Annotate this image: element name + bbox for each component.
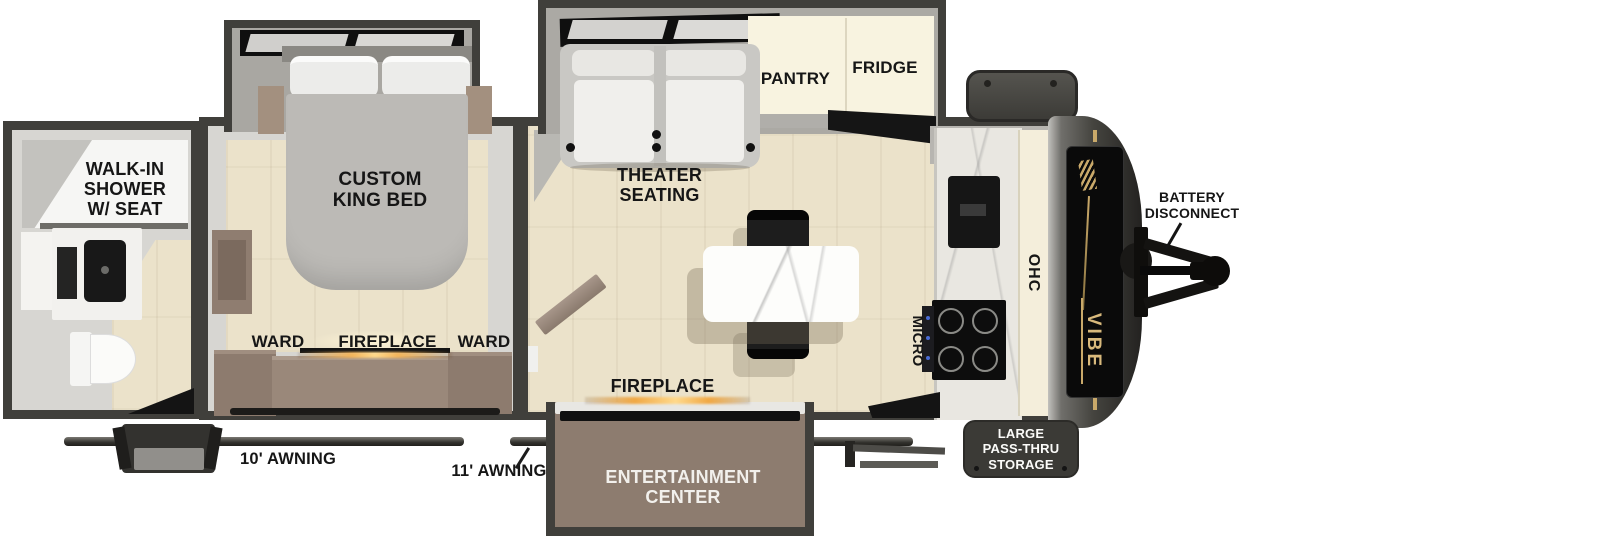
marker-light [1093,130,1097,142]
microwave-led [926,356,930,360]
microwave-label: MICRO [909,311,925,371]
screw-dot [1050,80,1057,87]
pass-thru-storage-label: LARGE PASS-THRU STORAGE [983,426,1060,473]
cupholder-dot [652,130,661,139]
cabinet-base [230,408,500,415]
burner [972,346,998,372]
entry-step-tread [134,448,204,470]
marker-light [1093,398,1097,410]
bedroom-fireplace-glow [298,352,452,358]
front-compartment [966,70,1078,122]
nightstand [466,86,492,134]
pantry-label: PANTRY [758,70,833,89]
wardrobe-left [214,350,276,416]
theater-headrest [572,50,656,76]
faucet [101,266,109,274]
vibe-logo: VIBE [1081,298,1103,384]
cupholder-dot [566,143,575,152]
king-bed-label: CUSTOM KING BED [300,170,460,212]
screw-dot [974,466,979,471]
walk-in-shower-label: WALK-IN SHOWER W/ SEAT [60,160,190,219]
entertainment-center-label: ENTERTAINMENT CENTER [598,468,768,508]
theater-cushion [664,80,744,162]
hitch-coupler [1200,256,1230,286]
microwave-led [926,316,930,320]
tv-strip [560,411,800,421]
living-fireplace-glow [585,397,750,404]
awning-11ft-label: 11' AWNING [444,462,554,480]
screw-dot [984,80,991,87]
battery-disconnect-label: BATTERY DISCONNECT [1142,189,1242,221]
screw-dot [1062,466,1067,471]
awning-arm [860,461,938,468]
fridge-label: FRIDGE [846,59,924,78]
awning-10ft-label: 10' AWNING [233,450,343,468]
fireplace-cabinet [272,356,452,414]
wardrobe-left-label: WARD [247,333,309,352]
pillow [290,56,378,98]
microwave-led [926,336,930,340]
awning-arm [853,444,945,454]
cupholder-dot [746,143,755,152]
toilet-tank [70,332,92,386]
linen-cabinet [21,232,54,310]
theater-seating-label: THEATER SEATING [592,166,727,206]
theater-cushion [574,80,654,162]
pillow [382,56,470,98]
overhead-cabinet-label: OHC [1026,243,1042,303]
burner [938,346,964,372]
wardrobe-right [448,352,512,414]
dining-table [703,246,859,322]
floorplan-canvas: 10' AWNING 11' AWNING WALK-IN SHOWER W/ … [0,0,1600,536]
entry-door-frame [528,346,538,372]
living-fireplace-label: FIREPLACE [605,377,720,397]
theater-headrest [662,50,746,76]
cupholder-dot [652,143,661,152]
cabinet-base [748,114,833,128]
burner [972,308,998,334]
nightstand [258,86,284,134]
bedroom-fireplace-label: FIREPLACE [330,333,445,352]
burner [938,308,964,334]
wardrobe-right-label: WARD [453,333,515,352]
medicine-cabinet [57,247,77,299]
window-pane [567,20,667,39]
bedroom-shelf-inset [218,240,246,300]
kitchen-faucet [960,204,986,216]
